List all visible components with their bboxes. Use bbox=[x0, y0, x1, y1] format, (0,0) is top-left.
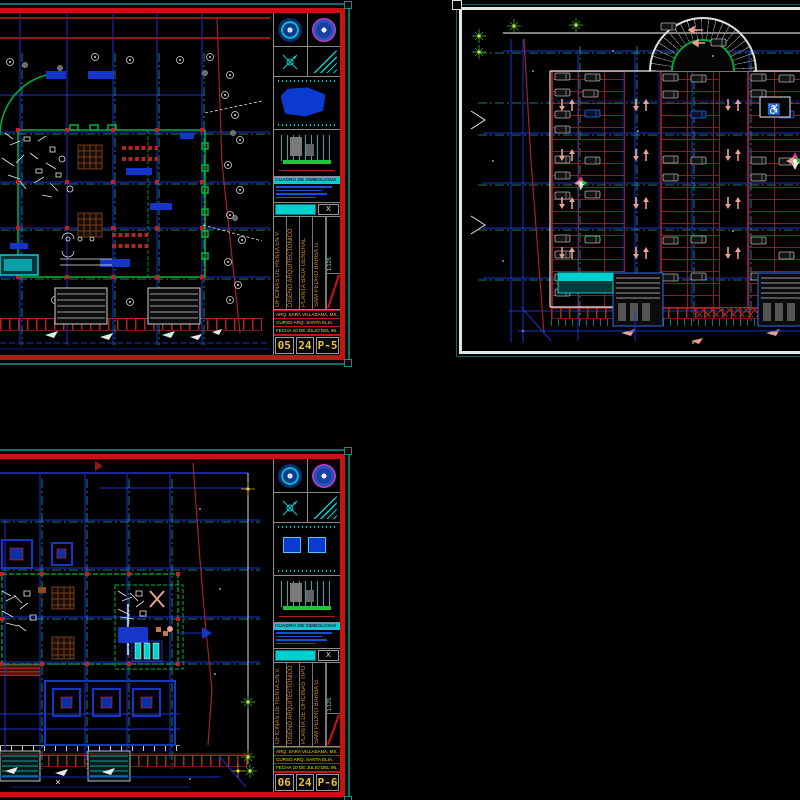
accessible-stall: ♿ bbox=[760, 97, 790, 117]
section-bar bbox=[290, 137, 302, 155]
ramp-arrows bbox=[689, 27, 705, 46]
section-ground-line bbox=[283, 606, 331, 610]
planter-water bbox=[558, 273, 613, 281]
parking-plan-objects: ♿ bbox=[463, 11, 800, 348]
service-core bbox=[115, 585, 183, 669]
map-block bbox=[283, 537, 301, 553]
parked-cars bbox=[555, 23, 794, 296]
sheet-border: CUADRO DE SIMBOLOGIA X OFICINAS DE RENTA… bbox=[0, 454, 345, 797]
author-name: SAM PEDRO BARBA G. bbox=[313, 663, 326, 746]
sheet-office-floor: CUADRO DE SIMBOLOGIA X OFICINAS DE RENTA… bbox=[0, 449, 350, 800]
sheet-number-cell: 05 bbox=[275, 337, 294, 354]
map-area bbox=[281, 87, 326, 116]
scale-label: 1:125 bbox=[327, 217, 340, 273]
skylight-squares bbox=[2, 540, 72, 568]
legend-title: CUADRO DE SIMBOLOGIA bbox=[274, 623, 340, 630]
slash-box bbox=[327, 273, 340, 309]
legend-entry bbox=[276, 190, 322, 192]
map-grid-ticks bbox=[278, 570, 336, 572]
scale-label: 1:125 bbox=[327, 663, 340, 713]
sheet-ground-floor: CUADRO DE SIMBOLOGIA X OFICINAS DE RENTA… bbox=[0, 3, 350, 365]
revision-mark: X bbox=[318, 650, 339, 661]
north-arrow bbox=[95, 461, 103, 471]
legend-entry bbox=[276, 186, 332, 188]
section-detail bbox=[274, 576, 340, 623]
sheet-border: ♿ bbox=[459, 7, 800, 354]
corner-tab bbox=[452, 0, 462, 10]
stair-core bbox=[758, 273, 800, 326]
cad-model-space: CUADRO DE SIMBOLOGIA X OFICINAS DE RENTA… bbox=[0, 0, 800, 800]
office-floor-plan bbox=[0, 459, 270, 788]
sheet-border: CUADRO DE SIMBOLOGIA X OFICINAS DE RENTA… bbox=[0, 8, 345, 360]
legend-entry bbox=[276, 643, 316, 645]
project-title: OFICINAS DE RENTA EN V. bbox=[274, 663, 287, 746]
legend: CUADRO DE SIMBOLOGIA bbox=[274, 623, 340, 649]
grid-nodes bbox=[16, 128, 204, 279]
section-datum-line bbox=[279, 616, 334, 617]
course-title: DISEÑO ARQUITECTONICO bbox=[287, 217, 300, 309]
centerlines bbox=[0, 479, 260, 769]
map-grid-ticks bbox=[278, 124, 336, 126]
corner-tab bbox=[344, 1, 352, 9]
course-title: DISEÑO ARQUITECTONICO bbox=[287, 663, 300, 746]
sheet-number-cell: P-6 bbox=[316, 774, 339, 791]
survey-line bbox=[217, 18, 240, 333]
section-detail bbox=[274, 130, 340, 177]
desk-clusters bbox=[112, 148, 158, 246]
title-block-ground: CUADRO DE SIMBOLOGIA X OFICINAS DE RENTA… bbox=[273, 13, 340, 355]
info-row: FECHA 10 DE JULIO DEL 96. bbox=[274, 326, 340, 334]
section-bar bbox=[306, 590, 314, 602]
sheet-number: 05 24 P-5 bbox=[274, 334, 340, 355]
aisle-arrows bbox=[559, 99, 741, 259]
legend-entry bbox=[276, 632, 332, 634]
hatch-sample-icon bbox=[311, 496, 337, 519]
hatch-sample-icon bbox=[311, 50, 337, 73]
grid-lines bbox=[0, 473, 260, 759]
survey-line bbox=[193, 463, 212, 745]
section-ground-line bbox=[283, 160, 331, 164]
sheet-number: 06 24 P-6 bbox=[274, 771, 340, 792]
legend: CUADRO DE SIMBOLOGIA bbox=[274, 177, 340, 203]
corner-tab bbox=[344, 359, 352, 367]
stair-core bbox=[613, 273, 663, 326]
location-map bbox=[274, 523, 340, 576]
info-row: CURSO ARQ. SANTA ELIA. bbox=[274, 755, 340, 763]
project-title: OFICINAS DE RENTA EN V. bbox=[274, 217, 287, 309]
sheet-number-cell: P-5 bbox=[316, 337, 339, 354]
university-seal-icon bbox=[278, 464, 302, 488]
wheelchair-icon: ♿ bbox=[767, 103, 781, 116]
courtyard-block bbox=[45, 681, 175, 745]
legend-entry bbox=[276, 193, 327, 195]
revision-mark: X bbox=[318, 204, 339, 215]
corner-tab bbox=[344, 796, 352, 800]
faculty-seal-icon bbox=[312, 464, 336, 488]
sheet-parking-level: ♿ bbox=[456, 4, 800, 357]
centerlines bbox=[0, 53, 270, 345]
section-datum-line bbox=[279, 170, 334, 171]
section-bar bbox=[306, 144, 314, 156]
north-compass-icon bbox=[280, 52, 300, 72]
leader-lines bbox=[203, 101, 262, 241]
curb-lines bbox=[0, 343, 270, 349]
map-block bbox=[308, 537, 326, 553]
map-grid-ticks bbox=[278, 526, 336, 528]
info-row: ARQ. SARA VILLASANA, MX. bbox=[274, 747, 340, 755]
legend-entry bbox=[276, 197, 316, 199]
stair-hatch-squares bbox=[78, 145, 102, 237]
corner-tab bbox=[344, 447, 352, 455]
legend-title: CUADRO DE SIMBOLOGIA bbox=[274, 177, 340, 184]
slash-box bbox=[327, 713, 340, 746]
sheet-number-cell: 24 bbox=[296, 774, 315, 791]
elevator-cars bbox=[135, 643, 159, 659]
sheet-number-cell: 24 bbox=[296, 337, 315, 354]
legend-entry bbox=[276, 639, 327, 641]
direction-arrows bbox=[45, 329, 222, 340]
survey-markers bbox=[472, 18, 583, 59]
university-seal-icon bbox=[278, 18, 302, 42]
sheet-number-cell: 06 bbox=[275, 774, 294, 791]
entry-ramps bbox=[55, 288, 200, 324]
stair-hatch-squares bbox=[52, 587, 74, 659]
info-rows: ARQ. SARA VILLASANA, MX. CURSO ARQ. SANT… bbox=[274, 309, 340, 334]
north-compass-icon bbox=[280, 498, 300, 518]
info-rows: ARQ. SARA VILLASANA, MX. CURSO ARQ. SANT… bbox=[274, 746, 340, 771]
legend-entry bbox=[276, 636, 322, 638]
pool bbox=[0, 255, 38, 275]
section-bar bbox=[290, 583, 302, 601]
notes-highlight bbox=[275, 204, 316, 215]
info-row: ARQ. SARA VILLASANA, MX. bbox=[274, 310, 340, 318]
faculty-seal-icon bbox=[312, 18, 336, 42]
street-lines bbox=[0, 18, 270, 38]
office-fixtures-left bbox=[2, 587, 46, 631]
map-grid-ticks bbox=[278, 80, 336, 82]
building-outline bbox=[0, 73, 208, 277]
notes-highlight bbox=[275, 650, 316, 661]
author-name: SAM PEDRO BARBA G. bbox=[313, 217, 326, 309]
title-block-offices: CUADRO DE SIMBOLOGIA X OFICINAS DE RENTA… bbox=[273, 459, 340, 792]
survey-markers bbox=[231, 482, 257, 778]
ground-floor-plan bbox=[0, 13, 270, 351]
drawing-title: PLANTA DE OFICINAS TIPO bbox=[300, 663, 313, 746]
location-map bbox=[274, 77, 340, 130]
stray-points bbox=[0, 498, 221, 780]
info-row: CURSO ARQ. SANTA ELIA. bbox=[274, 318, 340, 326]
info-row: FECHA 10 DE JULIO DEL 96. bbox=[274, 763, 340, 771]
entry-chevrons bbox=[471, 111, 485, 234]
drawing-title: PLANTA BAJA GENERAL bbox=[300, 217, 313, 309]
